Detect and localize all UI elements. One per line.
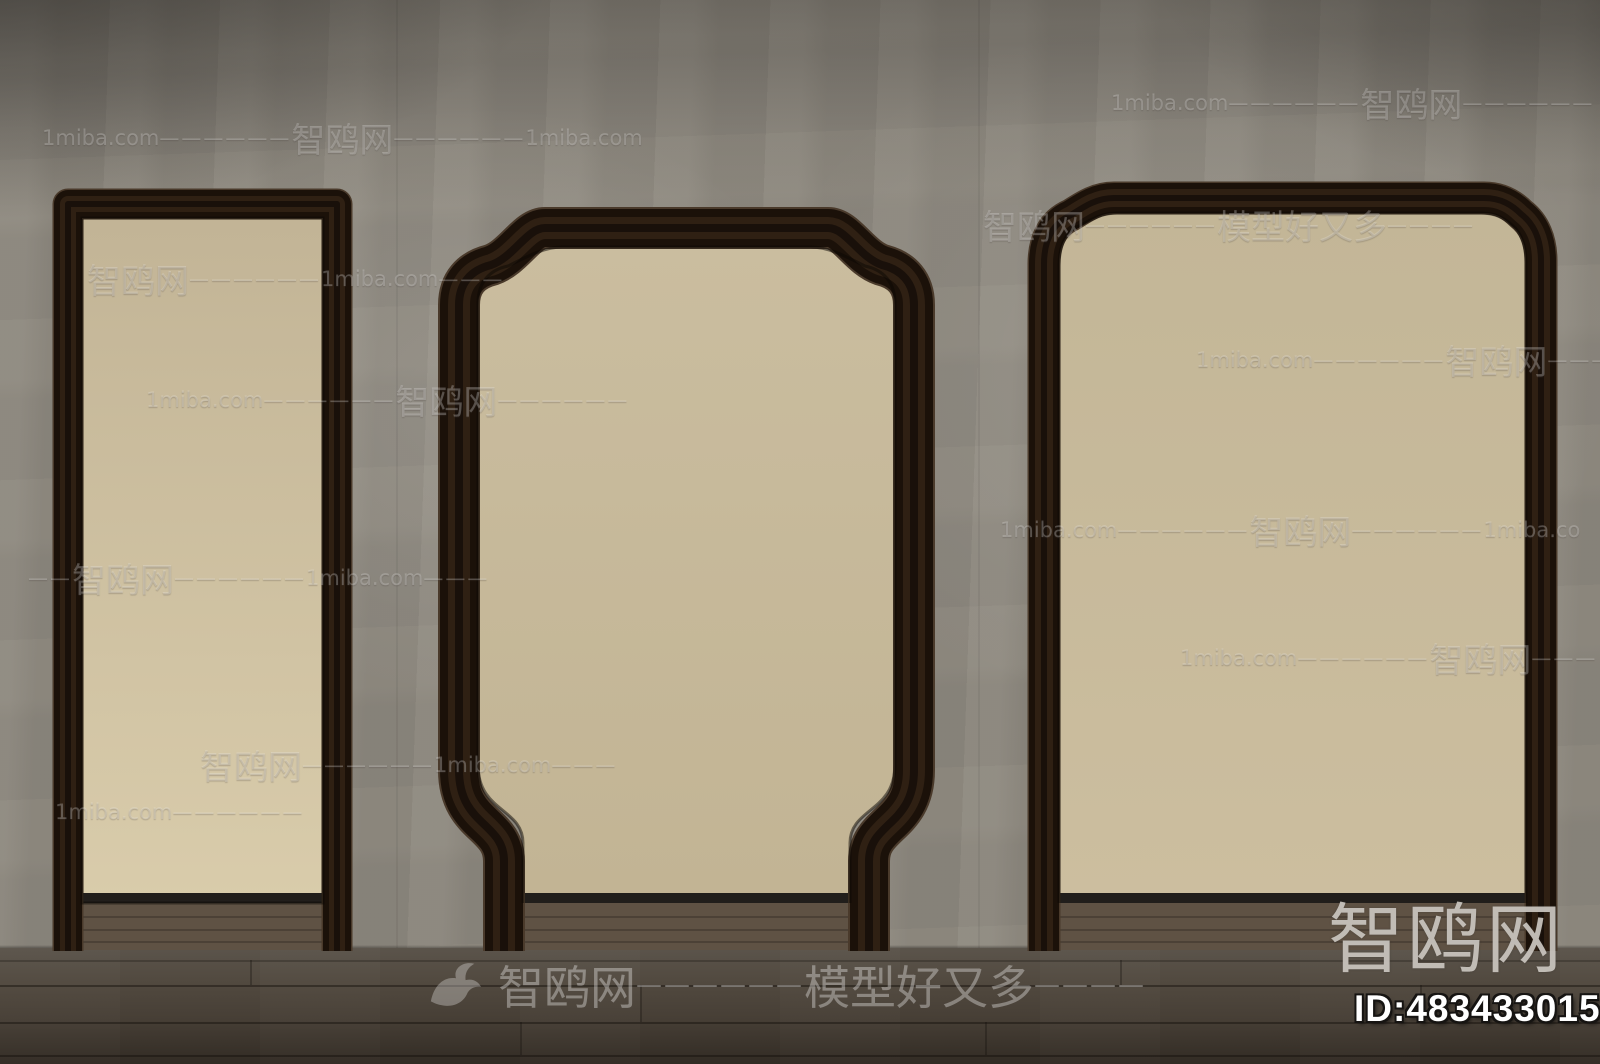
panel-base-shadow-right — [1059, 893, 1526, 903]
opening-floor-line — [1059, 916, 1526, 918]
opening-floor-line — [523, 941, 850, 943]
door-opening-panel-right — [1059, 213, 1526, 903]
panel-base-shadow-middle — [523, 893, 850, 903]
opening-floor-line — [82, 941, 323, 943]
opening-floor-line — [523, 929, 850, 931]
door-frame-middle — [459, 228, 914, 951]
opening-floor-line — [82, 916, 323, 918]
opening-floor-line — [82, 929, 323, 931]
opening-floor-line — [1059, 941, 1526, 943]
door-frame-left — [68, 204, 337, 951]
door-opening-panel-middle — [478, 247, 895, 903]
door-frame-right — [1044, 198, 1541, 951]
scene: 1miba.com——————智鸥网——————1miba.com——————智… — [0, 0, 1600, 1064]
opening-floor-line — [1059, 929, 1526, 931]
opening-floor-line — [523, 916, 850, 918]
door-opening-panel-left — [82, 218, 323, 903]
door-frames-graphic — [0, 0, 1600, 1064]
